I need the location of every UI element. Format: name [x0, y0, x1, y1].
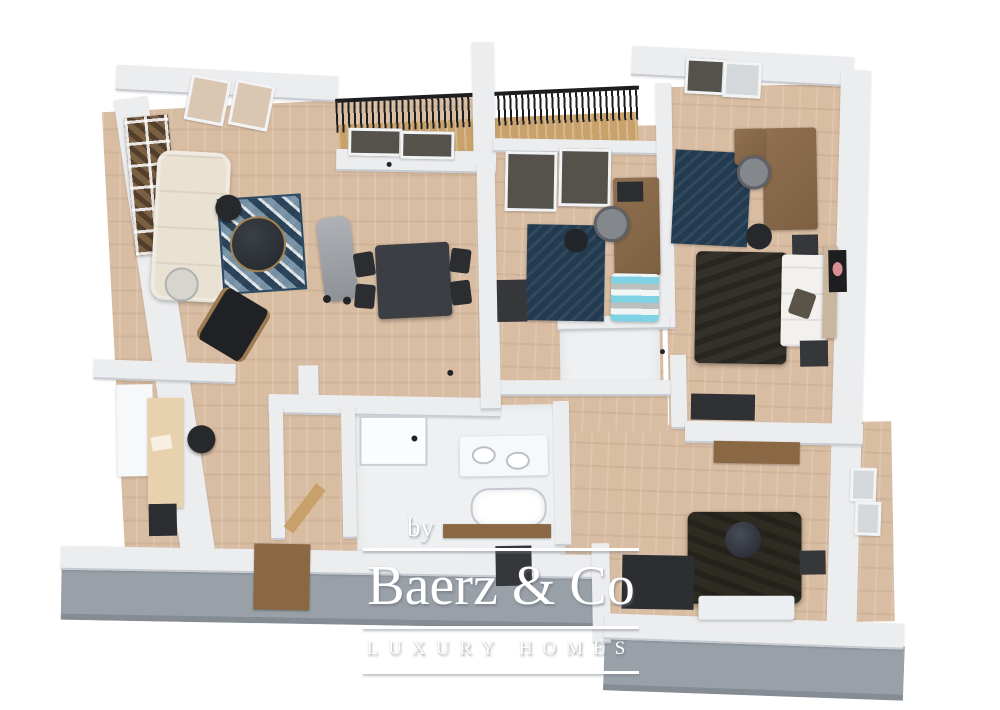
office-bottom-wall [495, 380, 670, 396]
bedroom1-window-dark [684, 57, 726, 95]
watermark-divider-bottom [363, 671, 639, 674]
watermark-tagline: LUXURY HOMES [363, 638, 639, 660]
bedroom1-lower-stub [670, 355, 687, 429]
closet-room-wall [269, 406, 285, 540]
living-bottom-wall-b [268, 394, 500, 418]
bedroom2-foot-bench [698, 596, 794, 620]
ceiling-spot [660, 349, 665, 354]
floor-plan-render: by Baerz & Co LUXURY HOMES [0, 0, 1000, 710]
watermark-brand: Baerz & Co [363, 555, 639, 617]
bedroom1-nightstand-bottom [800, 340, 828, 366]
striped-daybed [611, 273, 660, 322]
bedroom2-nightstand [799, 550, 825, 574]
shower-room-divider [341, 405, 357, 539]
shower-handle [411, 435, 417, 441]
bedroom1-desk [762, 127, 818, 230]
dining-chair-4 [450, 280, 473, 306]
shower [359, 416, 427, 466]
dining-chair-1 [353, 251, 377, 278]
entry-door-opening [253, 543, 310, 610]
living-bottom-wall-a [93, 359, 236, 384]
dining-chair-3 [449, 248, 472, 274]
watermark-by: by [363, 512, 639, 548]
bedroom1-window-light [722, 61, 762, 99]
balcony-door-2 [400, 131, 454, 160]
kitchen-bin [149, 504, 178, 536]
balcony-door-1 [348, 128, 402, 157]
kitchen-counter-desk [148, 398, 184, 508]
door-handle-1 [447, 370, 453, 376]
watermark-divider-middle [363, 626, 639, 629]
office-glass-door-2 [558, 148, 611, 207]
bedroom1-bed-blanket [694, 251, 788, 365]
door-handle-2 [387, 162, 392, 167]
bedroom1-dresser [691, 394, 755, 421]
dining-table [375, 242, 453, 320]
bedroom2-wall-ledge [714, 441, 800, 464]
watermark: by Baerz & Co LUXURY HOMES [363, 512, 639, 674]
bedroom2-window-1 [850, 467, 877, 502]
office-cabinet [497, 280, 528, 323]
office-monitor [617, 181, 643, 201]
dining-chair-2 [354, 284, 376, 310]
watermark-divider-top [363, 548, 639, 551]
bedroom1-art-accent [832, 262, 842, 276]
recliner-wheel-2 [343, 297, 351, 305]
bedroom2-window-2 [854, 501, 881, 536]
recliner-wheel-1 [323, 295, 331, 303]
office-glass-door-1 [504, 151, 557, 212]
wc-floor [559, 323, 660, 389]
